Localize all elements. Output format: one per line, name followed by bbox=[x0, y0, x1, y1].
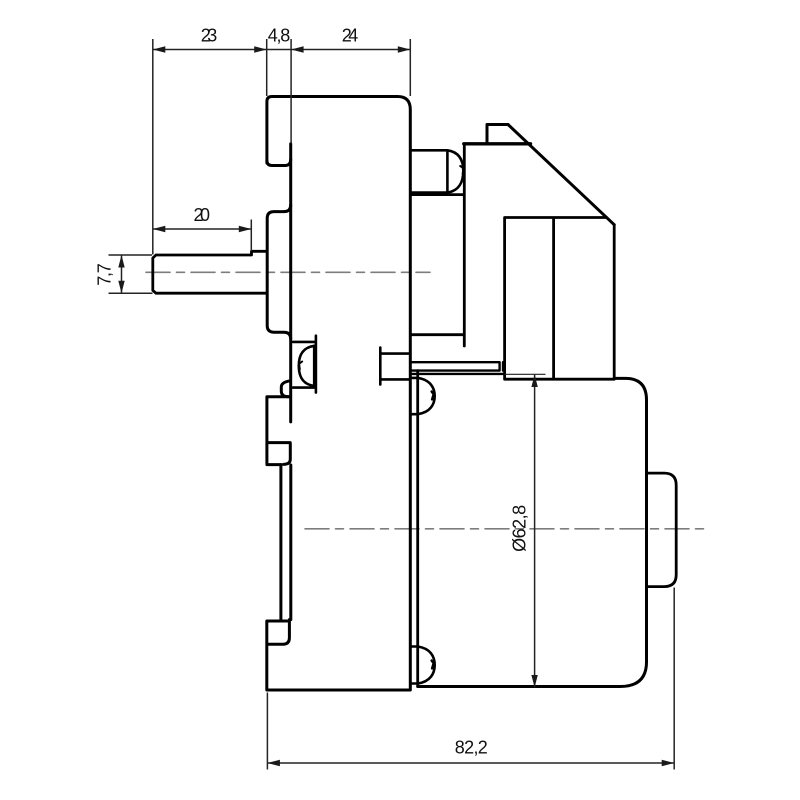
svg-text:82,2: 82,2 bbox=[455, 738, 488, 758]
svg-text:Ø62,8: Ø62,8 bbox=[509, 505, 529, 552]
svg-text:24: 24 bbox=[342, 26, 359, 46]
svg-text:20: 20 bbox=[194, 205, 211, 225]
svg-text:7,7: 7,7 bbox=[95, 263, 115, 286]
svg-text:4,8: 4,8 bbox=[268, 26, 291, 46]
svg-text:23: 23 bbox=[201, 26, 218, 46]
